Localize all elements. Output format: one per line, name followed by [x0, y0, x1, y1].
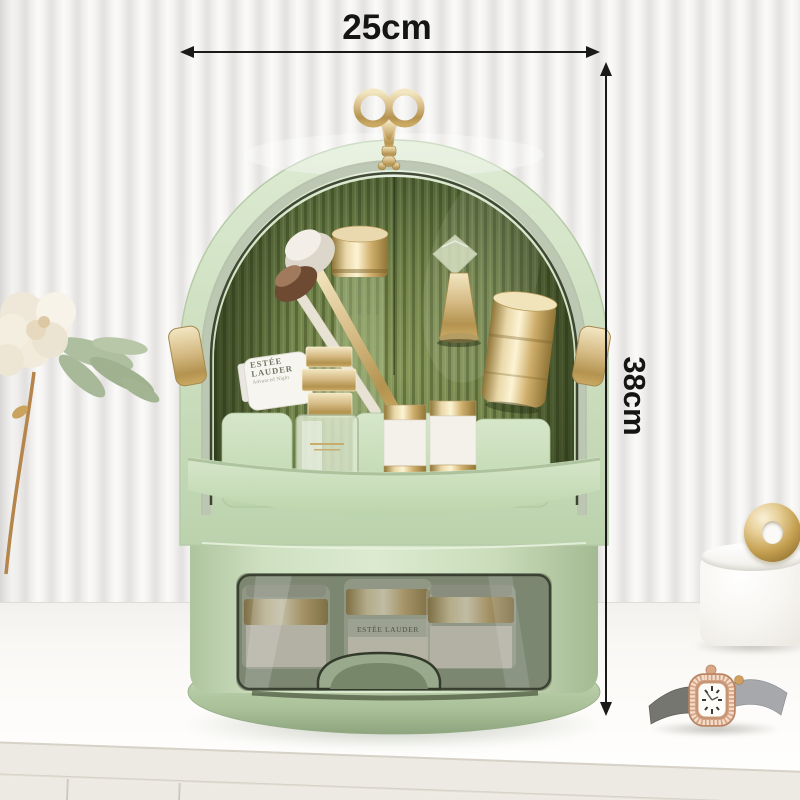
- flower-decor: [0, 272, 170, 602]
- square-lipstick-right: [430, 401, 476, 481]
- product-photo-stage: ESTÉE LAUDER ESTÉE: [0, 0, 800, 800]
- height-dimension-arrow: [605, 72, 607, 704]
- wrist-watch: [645, 658, 800, 743]
- cabinet-seam: [176, 783, 181, 800]
- gold-lipstick-stack: [302, 347, 356, 417]
- gold-ring-decor: [744, 503, 800, 562]
- watch-strap-loop: [735, 676, 744, 685]
- width-dimension-label: 25cm: [287, 8, 487, 48]
- cabinet-groove: [0, 773, 800, 800]
- flower-leaves: [53, 330, 163, 407]
- watch-strap-left: [649, 687, 691, 724]
- flower-stem: [6, 372, 34, 574]
- watch-strap-right: [733, 680, 787, 715]
- arrow-up-icon: [600, 62, 612, 76]
- square-lipstick-left: [384, 405, 426, 481]
- drawer-pull-notch[interactable]: [318, 653, 440, 689]
- arrow-down-icon: [600, 702, 612, 716]
- cabinet-seam: [64, 779, 69, 800]
- arrow-right-icon: [586, 46, 600, 58]
- arrow-left-icon: [180, 46, 194, 58]
- cosmetic-organizer: ESTÉE LAUDER: [160, 75, 620, 745]
- width-dimension-arrow: [188, 51, 588, 53]
- gold-ring-hole: [762, 521, 783, 544]
- drawer[interactable]: ESTÉE LAUDER: [236, 573, 552, 691]
- height-dimension-label: 38cm: [613, 346, 655, 446]
